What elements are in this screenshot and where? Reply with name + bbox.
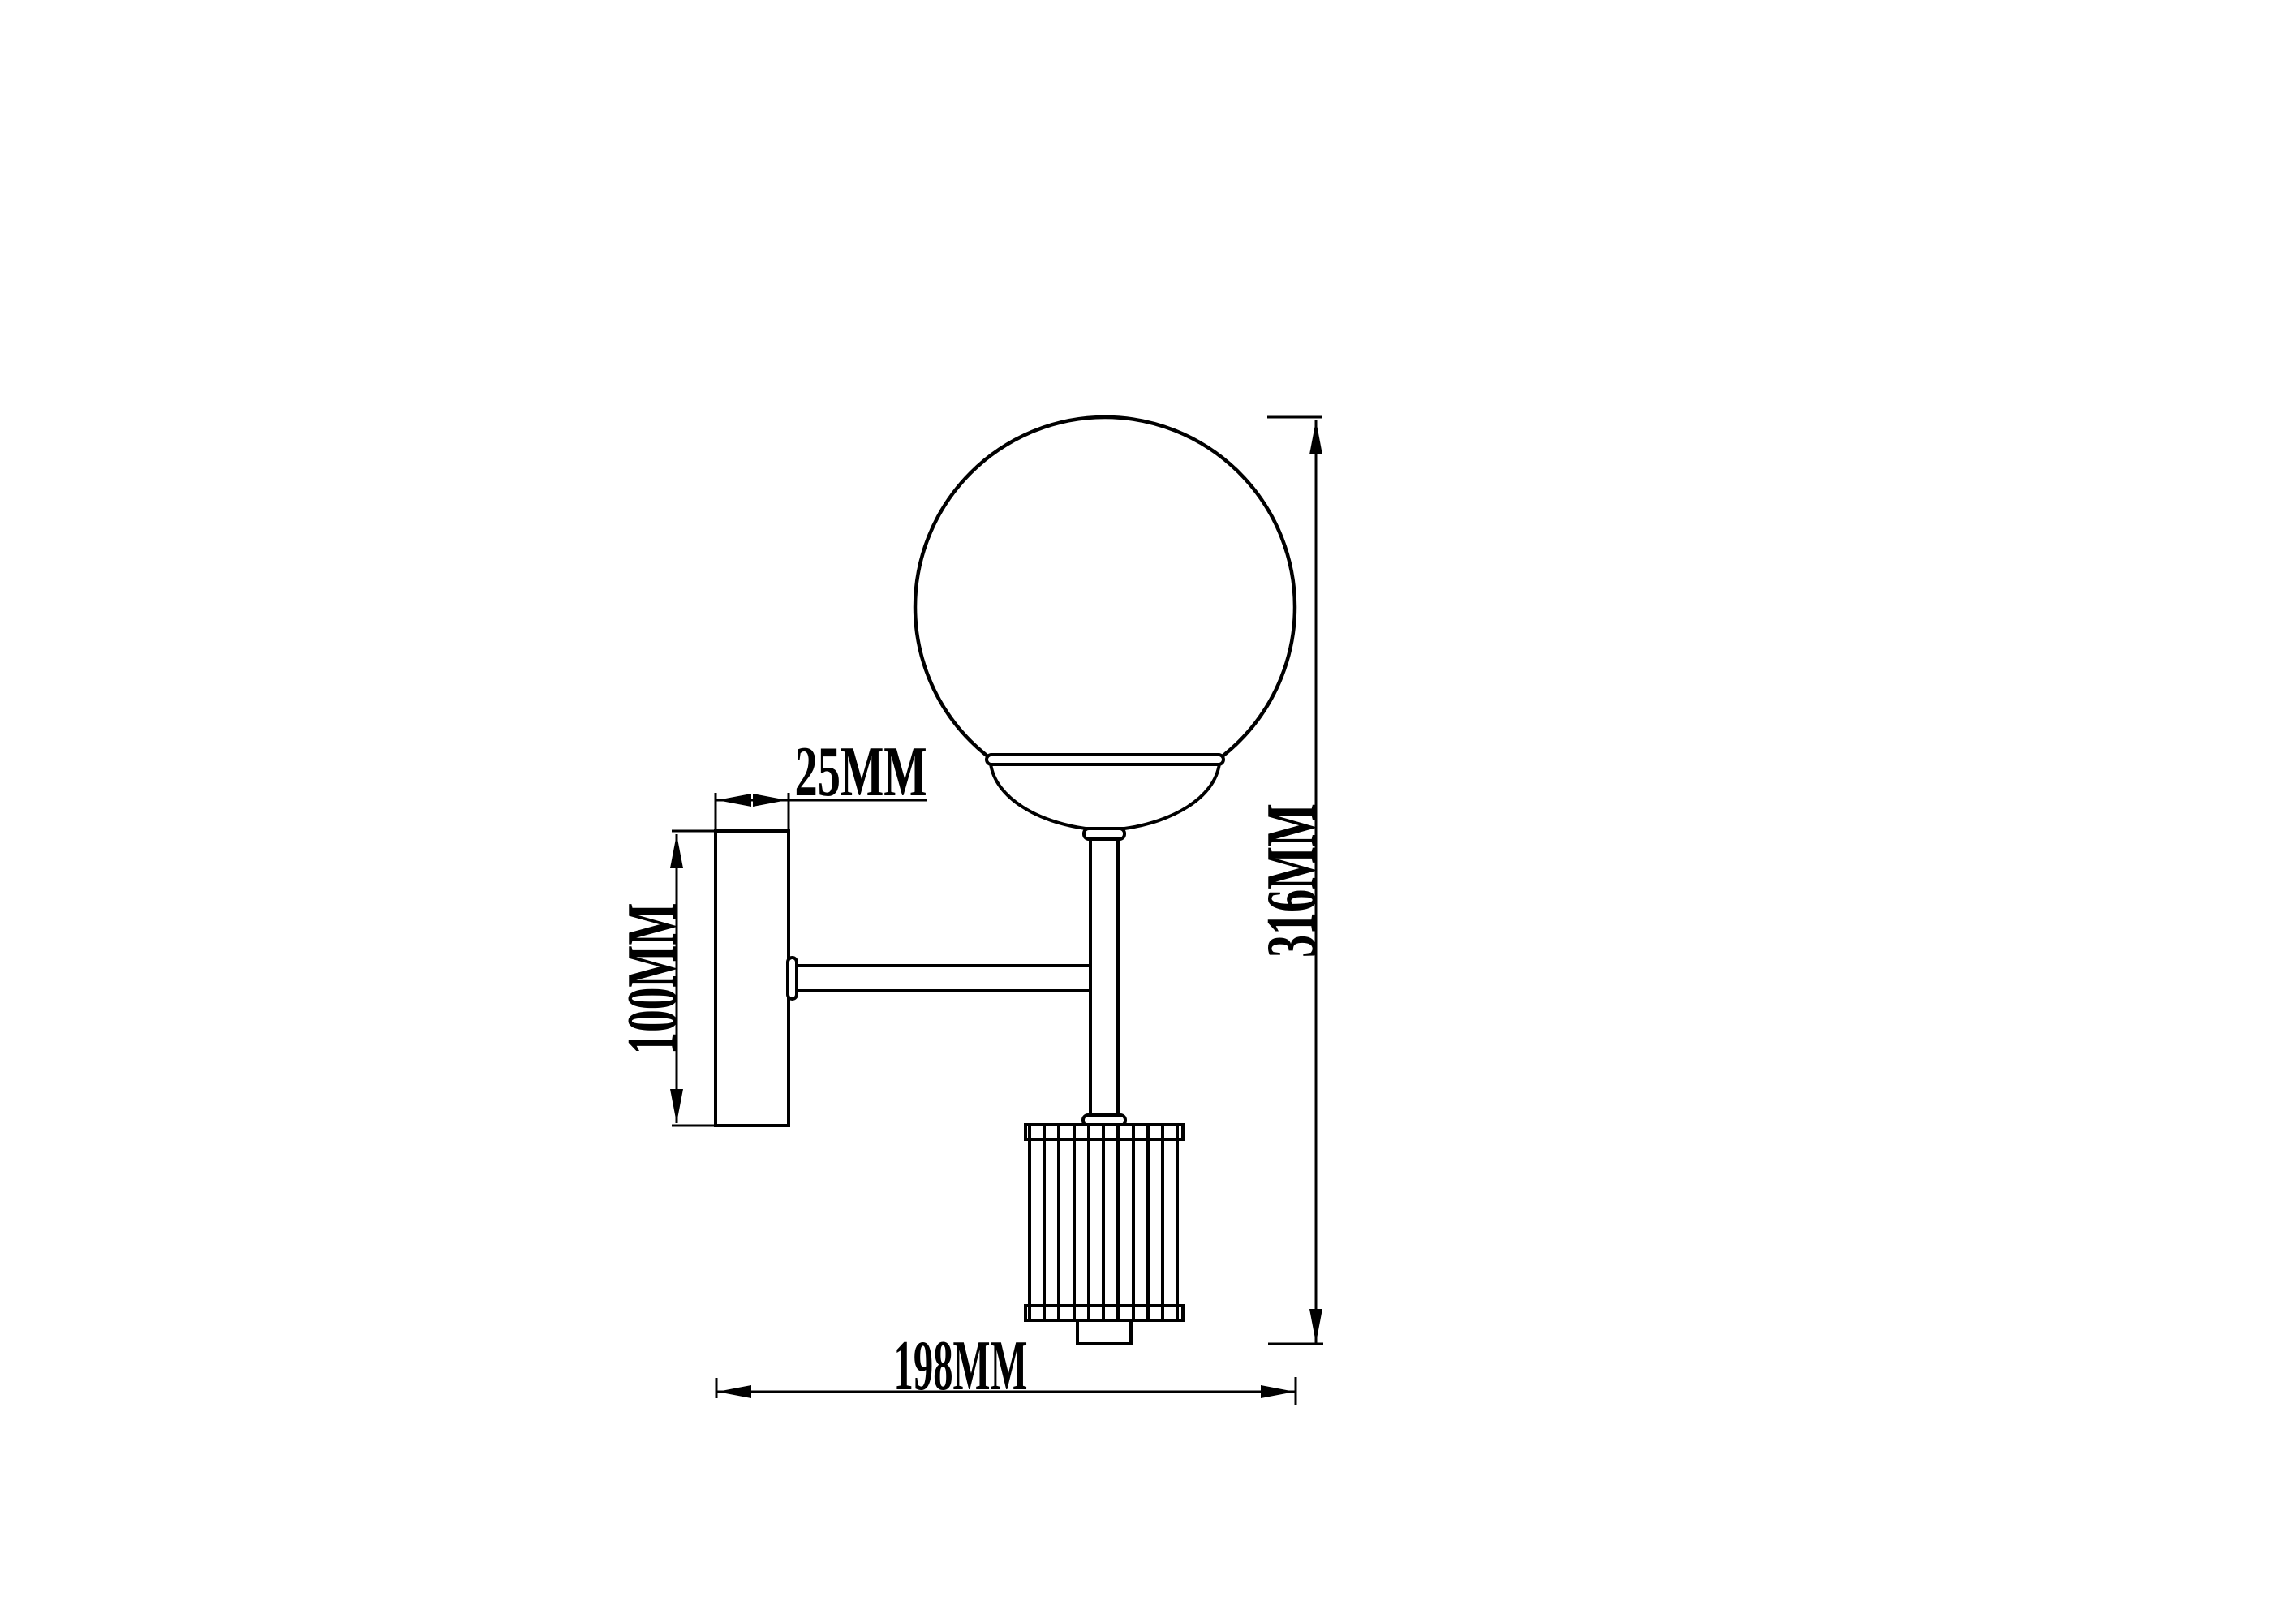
dim-label-plate-height: 100MM xyxy=(613,903,692,1055)
arrow-right-icon xyxy=(753,794,787,807)
arrow-left-icon xyxy=(717,794,751,807)
dim-label-plate-depth: 25MM xyxy=(795,733,927,811)
shade-fitter-rim xyxy=(987,755,1223,764)
shade-holder-funnel xyxy=(991,764,1219,829)
crystal-cylinder-ribs xyxy=(1030,1125,1177,1320)
dim-plate-depth: 25MM xyxy=(716,733,927,831)
dim-overall-height: 316MM xyxy=(1253,417,1331,1344)
bottom-finial xyxy=(1077,1320,1131,1344)
dim-plate-height: 100MM xyxy=(613,831,714,1126)
dimension-drawing: 25MM 100MM 316MM 198MM xyxy=(0,0,2296,1623)
dim-label-overall-projection: 198MM xyxy=(894,1327,1028,1406)
arrow-down-icon xyxy=(1309,1309,1322,1343)
arrow-left-icon xyxy=(717,1385,751,1398)
arrow-right-icon xyxy=(1261,1385,1295,1398)
arrow-up-icon xyxy=(670,834,683,868)
arrow-down-icon xyxy=(670,1089,683,1123)
dim-overall-projection: 198MM xyxy=(716,1327,1296,1406)
stem xyxy=(1090,839,1118,1117)
wall-backplate xyxy=(716,831,789,1126)
dim-label-overall-height: 316MM xyxy=(1253,803,1331,958)
globe-shade-outline xyxy=(915,417,1295,797)
arrow-up-icon xyxy=(1309,420,1322,454)
drawing-sheet: 25MM 100MM 316MM 198MM xyxy=(0,0,2296,1623)
sconce-fixture xyxy=(716,417,1295,1344)
arm-joint-cap xyxy=(788,958,797,999)
